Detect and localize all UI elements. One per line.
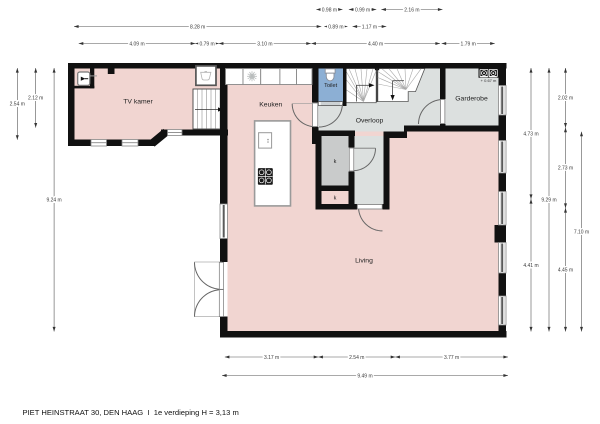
svg-text:4.73 m: 4.73 m bbox=[523, 131, 538, 137]
svg-text:Keuken: Keuken bbox=[259, 101, 282, 108]
svg-text:Garderobe: Garderobe bbox=[455, 96, 488, 103]
svg-text:4.09 m: 4.09 m bbox=[129, 41, 144, 47]
svg-text:0.89 m: 0.89 m bbox=[328, 24, 343, 30]
svg-text:TV kamer: TV kamer bbox=[123, 98, 153, 105]
svg-text:2.54 m: 2.54 m bbox=[10, 102, 25, 108]
svg-text:4.41 m: 4.41 m bbox=[523, 263, 538, 269]
svg-text:k: k bbox=[334, 159, 337, 165]
svg-text:Living: Living bbox=[355, 257, 373, 264]
svg-text:4.40 m: 4.40 m bbox=[368, 41, 383, 47]
svg-text:1.79 m: 1.79 m bbox=[461, 41, 476, 47]
svg-text:9.49 m: 9.49 m bbox=[357, 373, 372, 379]
svg-text:4.45 m: 4.45 m bbox=[558, 268, 573, 274]
svg-text:3.17 m: 3.17 m bbox=[264, 355, 279, 361]
svg-text:3.77 m: 3.77 m bbox=[444, 355, 459, 361]
svg-text:9.24 m: 9.24 m bbox=[46, 198, 61, 204]
svg-text:0.99 m: 0.99 m bbox=[355, 7, 370, 13]
svg-text:8.28 m: 8.28 m bbox=[190, 24, 205, 30]
svg-text:3.10 m: 3.10 m bbox=[257, 41, 272, 47]
svg-text:2.12 m: 2.12 m bbox=[28, 96, 43, 102]
svg-text:2.54 m: 2.54 m bbox=[349, 355, 364, 361]
svg-text:2.16 m: 2.16 m bbox=[404, 7, 419, 13]
svg-text:2.73 m: 2.73 m bbox=[558, 166, 573, 172]
svg-text:9.29 m: 9.29 m bbox=[541, 198, 556, 204]
svg-text:2.02 m: 2.02 m bbox=[558, 96, 573, 102]
svg-text:7.10 m: 7.10 m bbox=[574, 229, 589, 235]
svg-text:Toilet: Toilet bbox=[324, 83, 338, 89]
svg-text:0.98 m: 0.98 m bbox=[322, 7, 337, 13]
svg-text:0.79 m: 0.79 m bbox=[199, 41, 214, 47]
svg-text:k: k bbox=[334, 196, 337, 202]
svg-text:+ 0.67 m: + 0.67 m bbox=[481, 78, 497, 83]
svg-text:1.17 m: 1.17 m bbox=[362, 24, 377, 30]
svg-text:PIET HEINSTRAAT 30, DEN HAAG: PIET HEINSTRAAT 30, DEN HAAG I 1e verdie… bbox=[23, 408, 239, 417]
svg-text:Overloop: Overloop bbox=[356, 118, 384, 125]
